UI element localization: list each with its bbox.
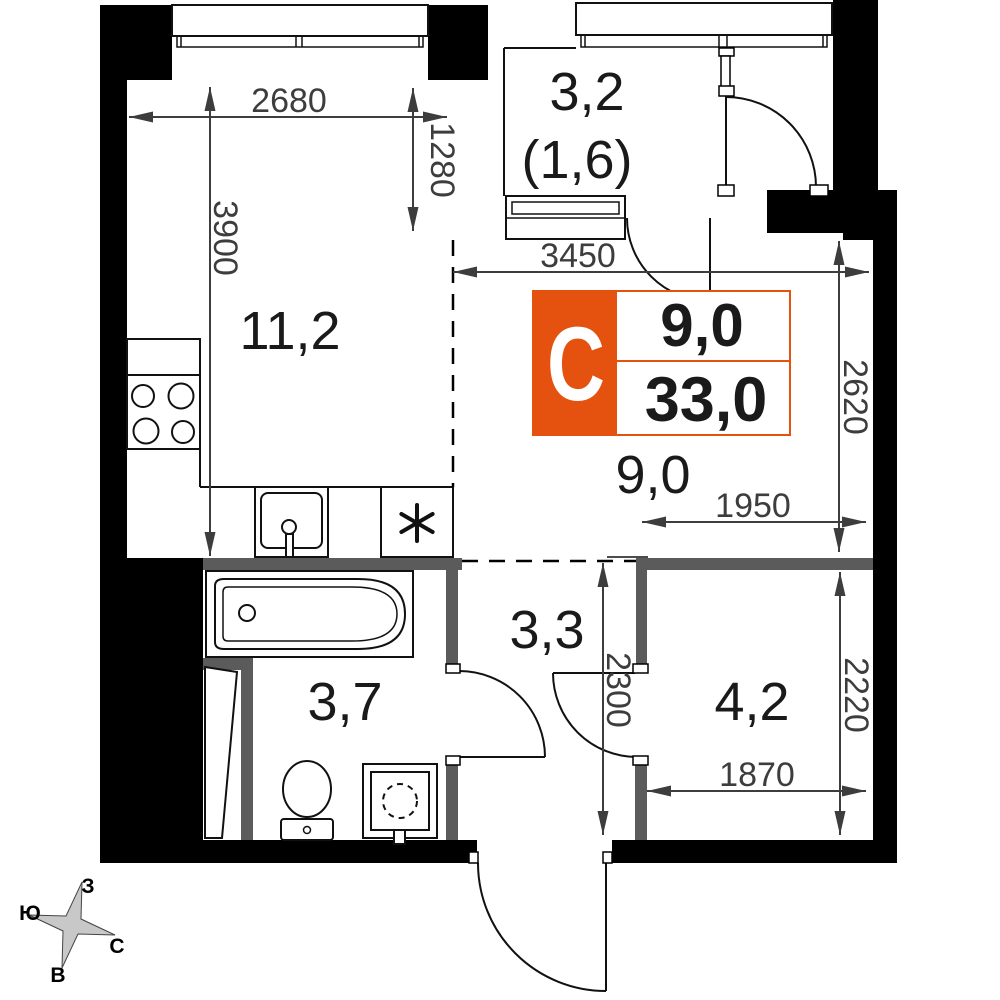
loggia-door-cap-bottom (719, 86, 734, 96)
bathroom-door-swing (459, 671, 545, 757)
wall-storage-left-lower (635, 765, 647, 840)
dim-living-depth: 2620 (836, 359, 874, 435)
duct-panel (205, 667, 237, 838)
label-storage: 4,2 (714, 672, 789, 732)
wall-bottom-right (612, 840, 897, 863)
wall-right (873, 190, 897, 863)
dim-niche-depth: 1280 (423, 122, 461, 198)
bathtub (206, 571, 413, 657)
wall-left (100, 5, 127, 558)
wall-bathroom-top (203, 558, 462, 570)
label-hallway: 3,3 (509, 600, 584, 660)
kitchen-counter (127, 339, 453, 557)
wall-bathroom-right-upper (446, 568, 458, 665)
wall-loggia-right (833, 0, 878, 192)
loggia-glazing-sill (576, 3, 832, 35)
label-loggia-counted: (1,6) (521, 130, 632, 190)
dim-storage-depth: 2220 (837, 657, 875, 733)
kitchen-window-frame (177, 36, 423, 47)
loggia-door-swing (726, 97, 816, 187)
entrance-jamb-left (469, 852, 478, 863)
compass-east-label: В (50, 964, 65, 987)
storage-door-jamb-bottom (633, 756, 648, 765)
dim-living-width: 3450 (540, 237, 616, 275)
faucet (282, 520, 296, 534)
badge-total-area: 33,0 (645, 365, 768, 435)
dim-living-zone-width: 1950 (715, 487, 791, 525)
badge-living-area: 9,0 (660, 292, 743, 359)
dim-kitchen-width: 2680 (251, 82, 327, 120)
loggia-door-leaf (721, 56, 730, 88)
loggia-glazing-frame (581, 35, 827, 47)
label-bathroom: 3,7 (307, 672, 382, 732)
compass-west-label: З (81, 875, 94, 898)
wall-storage-top-left (636, 558, 873, 664)
label-living-zone: 9,0 (615, 445, 690, 505)
wall-top-mid-block (428, 5, 488, 80)
wall-bottom-left (203, 840, 477, 863)
dim-hallway-depth: 2300 (599, 652, 637, 728)
wall-top-left-block (100, 5, 172, 80)
loggia-bracket-left (718, 185, 734, 196)
loggia-door-cap-top (719, 48, 734, 56)
toilet-bowl (283, 761, 331, 817)
bathroom-door-jamb-bottom (446, 756, 460, 765)
wall-left-corner-block (100, 558, 203, 863)
loggia-room-door-swing (627, 218, 710, 301)
label-kitchen-living: 11,2 (239, 301, 340, 361)
bathroom-door-jamb-top (446, 664, 460, 673)
info-badge: С 9,0 33,0 (533, 291, 790, 435)
entrance-jamb-right (603, 852, 612, 863)
compass: З Ю С В (19, 875, 124, 987)
kitchen-window-sill (172, 5, 428, 36)
compass-north-label: С (109, 935, 124, 958)
entrance-door-swing (478, 863, 606, 991)
floor-plan-drawing: 2680 1280 3900 3450 2620 1950 2300 2220 … (0, 0, 1000, 1000)
compass-south-label: Ю (19, 902, 41, 925)
toilet-tank (281, 819, 333, 840)
windows (172, 3, 832, 301)
dim-kitchen-length: 3900 (206, 200, 244, 276)
wall-bathroom-right-lower (446, 765, 458, 840)
label-loggia-total: 3,2 (549, 62, 624, 122)
loggia-bracket-right (810, 185, 828, 196)
wall-loggia-step (767, 190, 845, 233)
washbasin (363, 764, 437, 838)
floor-plan-page: 2680 1280 3900 3450 2620 1950 2300 2220 … (0, 0, 1000, 1000)
compass-star (29, 882, 115, 968)
dim-storage-width: 1870 (719, 756, 795, 794)
brand-letter: С (547, 306, 605, 423)
